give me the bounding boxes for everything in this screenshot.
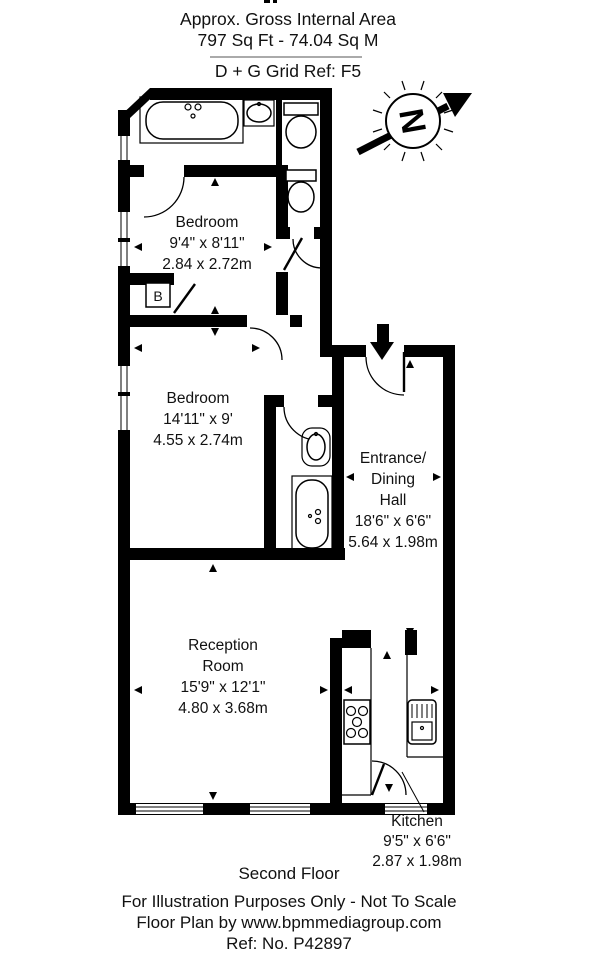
room-name: Room — [202, 658, 243, 675]
room-size-imperial: 18'6" x 6'6" — [355, 513, 431, 530]
boiler-cupboard: B — [146, 283, 170, 307]
bathtub — [296, 480, 328, 548]
bedroom2-label: Bedroom 14'11" x 9' 4.55 x 2.74m — [153, 390, 243, 449]
cupboard-door-leaf — [174, 284, 195, 313]
room-size-metric: 4.55 x 2.74m — [153, 432, 243, 449]
wc-door-arc — [293, 239, 322, 268]
room-name: Bedroom — [176, 214, 239, 231]
bathroom-door-arc — [144, 177, 184, 217]
wc-fixtures — [286, 170, 316, 212]
cropped-text-mark — [264, 0, 270, 3]
toilet-bowl — [286, 116, 316, 148]
room-size-metric: 4.80 x 3.68m — [178, 700, 268, 717]
wash-basin — [307, 434, 325, 460]
room-name: Hall — [380, 492, 407, 509]
bathroom-fixtures — [140, 97, 318, 148]
room-name: Reception — [188, 637, 258, 654]
reference-number: Ref: No. P42897 — [226, 934, 352, 953]
entrance-door-arc — [366, 357, 404, 395]
room-size-imperial: 9'5" x 6'6" — [383, 833, 451, 850]
disclaimer-text: For Illustration Purposes Only - Not To … — [121, 892, 456, 911]
room-name: Bedroom — [167, 390, 230, 407]
room-name: Kitchen — [391, 813, 443, 830]
kitchen-door-leaf — [372, 764, 384, 795]
toilet-bowl — [288, 182, 314, 212]
credit-text: Floor Plan by www.bpmmediagroup.com — [136, 913, 441, 932]
cropped-text-mark — [273, 0, 277, 3]
room-size-metric: 5.64 x 1.98m — [348, 534, 438, 551]
footer: Second Floor For Illustration Purposes O… — [121, 864, 456, 953]
room-size-imperial: 15'9" x 12'1" — [180, 679, 265, 696]
bedroom2-door-arc — [250, 328, 282, 360]
wash-basin — [247, 104, 271, 122]
area-label: Approx. Gross Internal Area — [180, 9, 396, 29]
room-size-imperial: 14'11" x 9' — [163, 411, 233, 428]
hob — [344, 700, 370, 744]
boiler-label: B — [153, 288, 162, 304]
room-size-metric: 2.84 x 2.72m — [162, 256, 252, 273]
area-value: 797 Sq Ft - 74.04 Sq M — [198, 30, 379, 50]
floorplan-canvas: Approx. Gross Internal Area 797 Sq Ft - … — [0, 0, 600, 954]
floorplan-page: Approx. Gross Internal Area 797 Sq Ft - … — [0, 0, 600, 954]
room-size-imperial: 9'4" x 8'11" — [169, 235, 244, 252]
bathroom2-fixtures — [292, 428, 332, 552]
grid-ref: D + G Grid Ref: F5 — [215, 61, 361, 81]
bathtub — [146, 102, 238, 139]
room-name: Entrance/ — [360, 450, 427, 467]
room-name: Dining — [371, 471, 415, 488]
hall-label: Entrance/ Dining Hall 18'6" x 6'6" 5.64 … — [348, 450, 438, 551]
compass: N — [358, 81, 472, 161]
bedroom1-label: Bedroom 9'4" x 8'11" 2.84 x 2.72m — [162, 214, 252, 273]
entrance-arrow-icon — [370, 324, 394, 360]
header: Approx. Gross Internal Area 797 Sq Ft - … — [180, 0, 396, 81]
floor-name: Second Floor — [238, 864, 339, 883]
reception-label: Reception Room 15'9" x 12'1" 4.80 x 3.68… — [178, 637, 268, 717]
room-size-metric: 2.87 x 1.98m — [372, 853, 462, 870]
toilet-cistern — [284, 103, 318, 115]
toilet-cistern — [286, 170, 316, 181]
kitchen-fixtures — [342, 648, 443, 795]
